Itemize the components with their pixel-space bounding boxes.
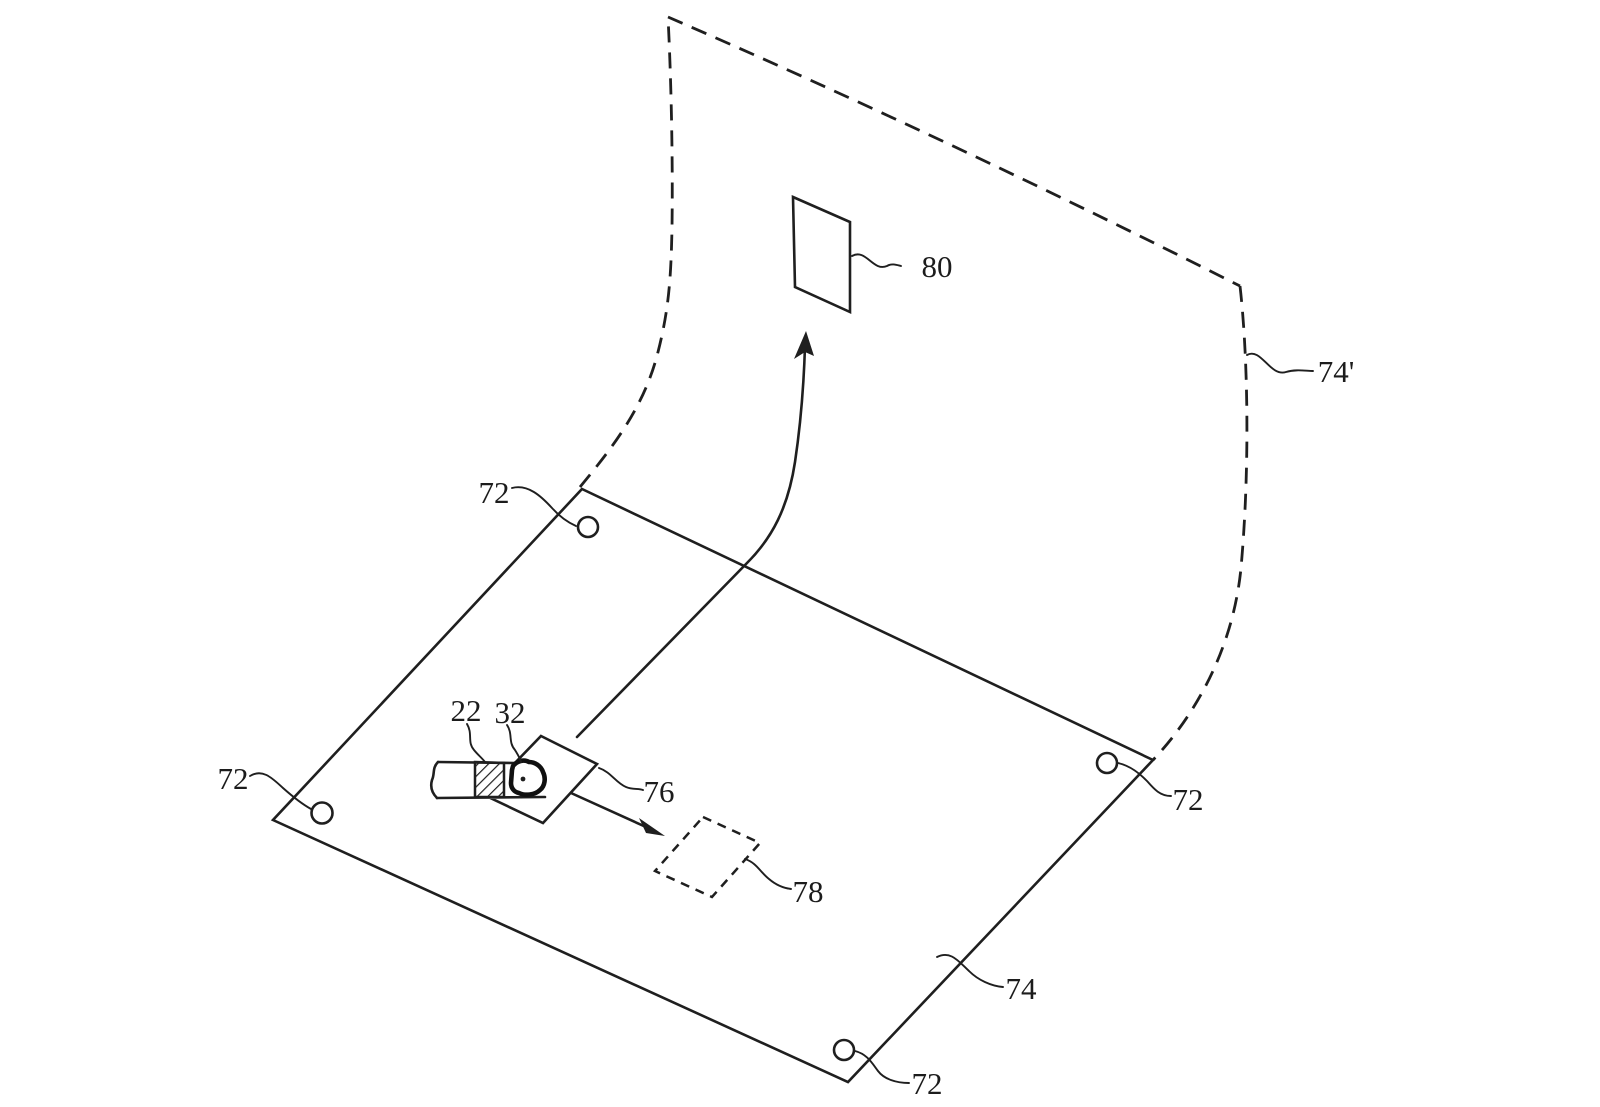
leader-76 xyxy=(599,768,643,790)
patent-figure: 22 32 72 72 72 72 74 74' 76 78 80 xyxy=(0,0,1600,1107)
label-80: 80 xyxy=(922,249,953,284)
label-72-bottom: 72 xyxy=(912,1066,943,1101)
target-outline-78 xyxy=(655,817,760,897)
attachment-hole-bottom xyxy=(834,1040,854,1060)
attachment-hole-left xyxy=(312,803,333,824)
leader-72-left xyxy=(250,773,311,809)
label-74-prime: 74' xyxy=(1318,354,1355,389)
label-72-left: 72 xyxy=(218,761,249,796)
label-76: 76 xyxy=(644,774,675,809)
leader-74-prime xyxy=(1247,354,1313,373)
leader-78 xyxy=(745,859,791,889)
attachment-hole-right xyxy=(1097,753,1117,773)
curled-substrate-74-prime xyxy=(580,17,1247,760)
attachment-hole-top xyxy=(578,517,598,537)
transfer-arrow-up xyxy=(577,331,814,737)
label-72-right: 72 xyxy=(1173,782,1204,817)
label-72-top: 72 xyxy=(479,475,510,510)
leader-74 xyxy=(937,955,1003,987)
curled-sheet-top-edge xyxy=(668,17,1240,286)
patent-drawing-canvas: 22 32 72 72 72 72 74 74' 76 78 80 xyxy=(0,0,1600,1107)
leader-22 xyxy=(467,724,485,762)
reference-labels: 22 32 72 72 72 72 74 74' 76 78 80 xyxy=(218,249,1355,1101)
fingertip-dot xyxy=(521,777,526,782)
curled-sheet-right-edge xyxy=(1153,286,1247,760)
label-74: 74 xyxy=(1006,971,1038,1006)
curled-sheet-left-edge xyxy=(580,17,672,487)
transfer-arrow-down-shaft xyxy=(571,793,646,827)
label-78: 78 xyxy=(793,874,824,909)
leader-32 xyxy=(507,725,521,762)
fingertip-element-32 xyxy=(511,761,545,795)
label-22: 22 xyxy=(451,693,482,728)
raised-patch-80 xyxy=(793,197,850,312)
hatched-band-22 xyxy=(475,762,504,797)
leader-lines xyxy=(250,254,1313,1083)
label-32: 32 xyxy=(495,695,526,730)
leader-80 xyxy=(852,254,901,267)
